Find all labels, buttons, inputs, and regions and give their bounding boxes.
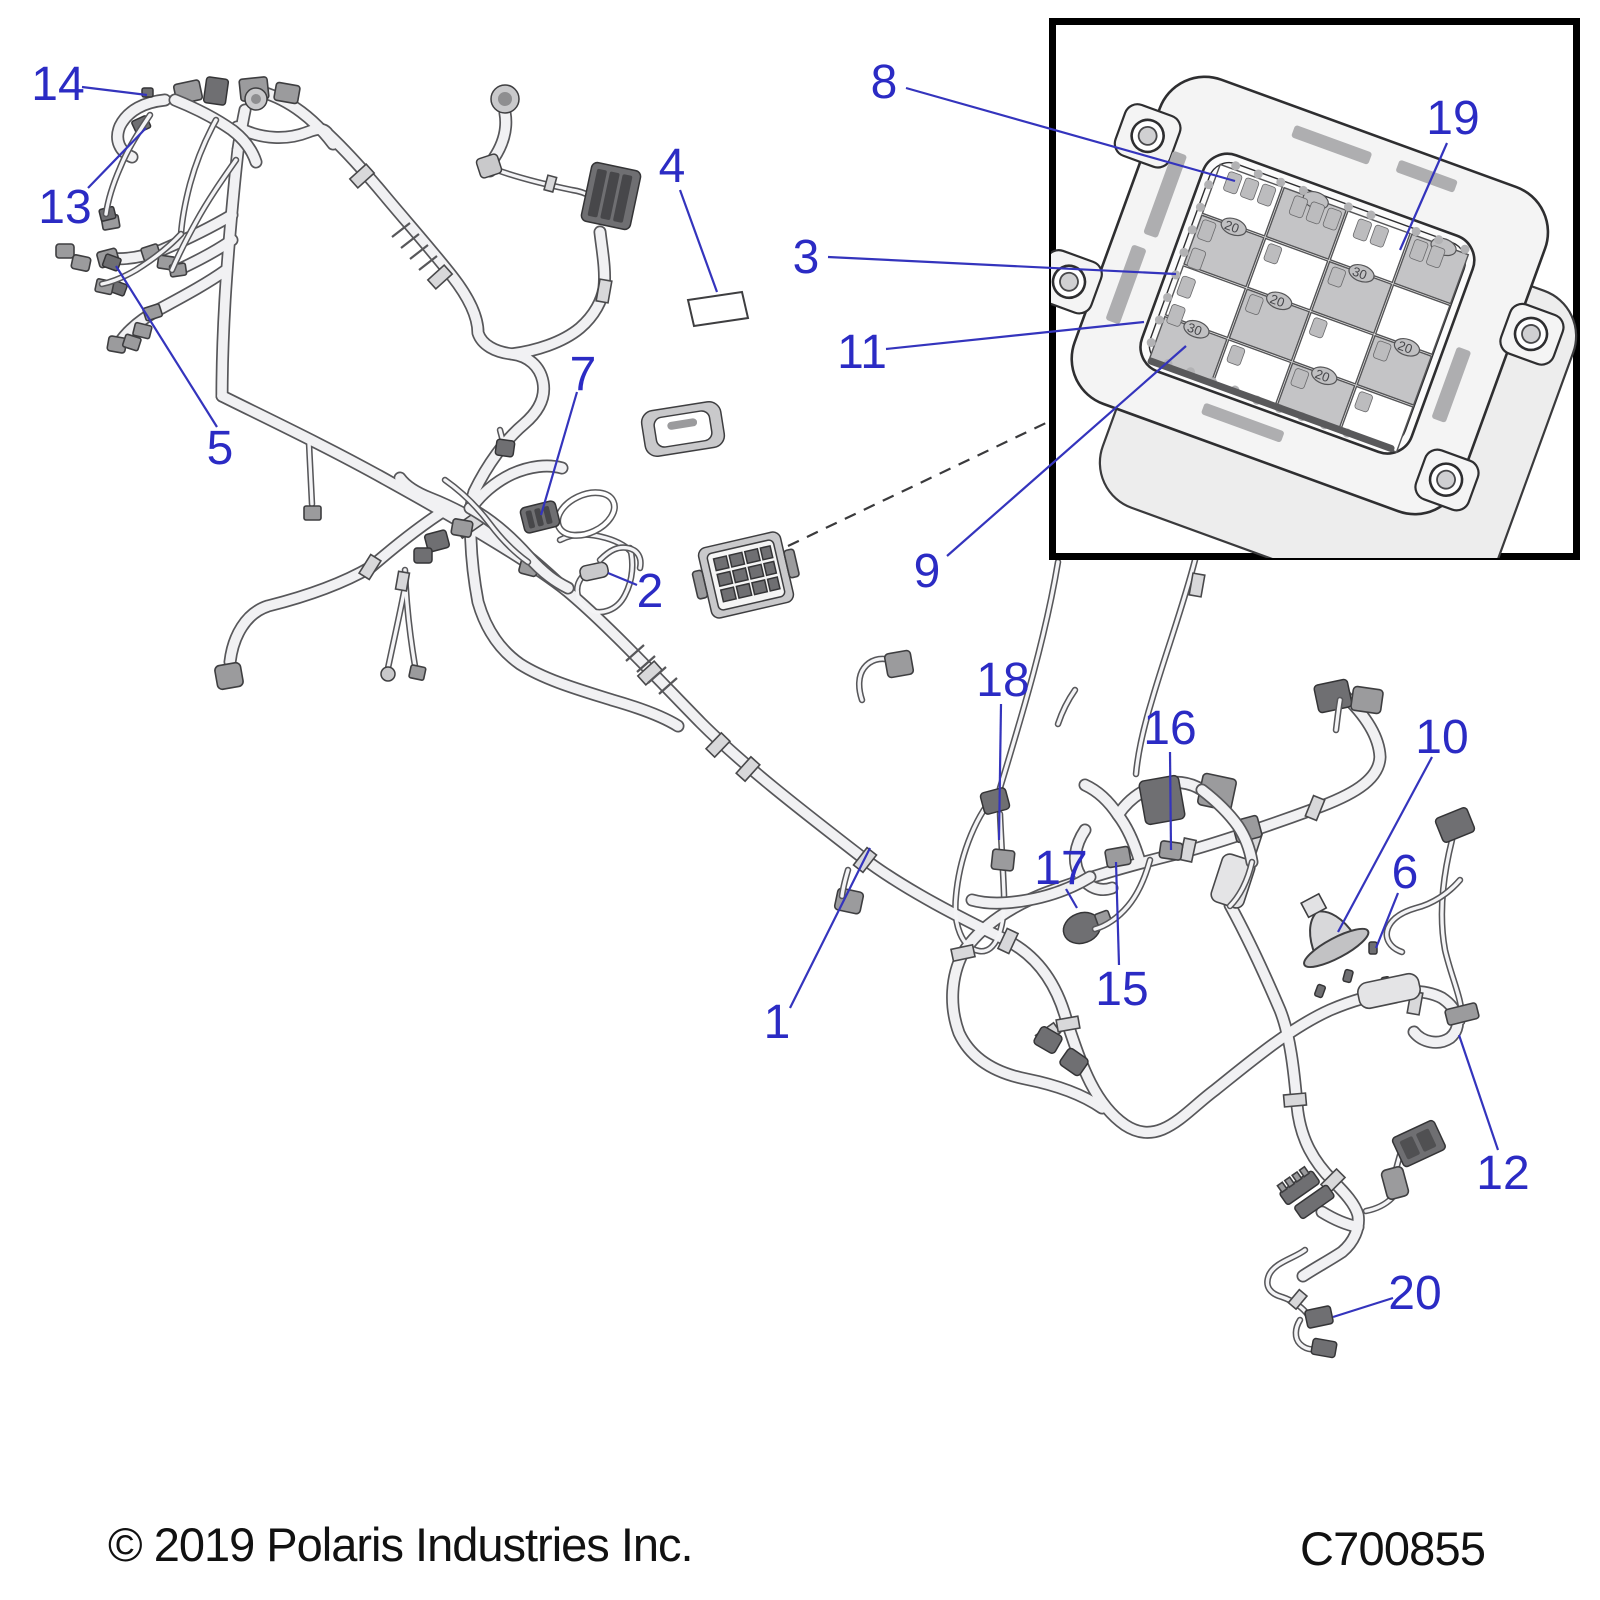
svg-text:15: 15	[1095, 963, 1148, 1016]
svg-text:16: 16	[1143, 702, 1196, 755]
svg-text:5: 5	[207, 422, 234, 475]
svg-text:13: 13	[38, 181, 91, 234]
svg-text:2: 2	[637, 565, 664, 618]
svg-text:14: 14	[31, 58, 84, 111]
svg-text:© 2019 Polaris Industries Inc.: © 2019 Polaris Industries Inc.	[108, 1518, 693, 1571]
svg-text:20: 20	[1388, 1267, 1441, 1320]
svg-text:8: 8	[871, 56, 898, 109]
svg-text:1: 1	[764, 996, 791, 1049]
svg-text:C700855: C700855	[1300, 1522, 1485, 1575]
svg-text:9: 9	[914, 545, 941, 598]
svg-text:12: 12	[1476, 1147, 1529, 1200]
svg-text:17: 17	[1034, 842, 1087, 895]
svg-text:18: 18	[976, 654, 1029, 707]
svg-text:19: 19	[1426, 92, 1479, 145]
svg-text:4: 4	[659, 140, 686, 193]
svg-text:11: 11	[837, 326, 887, 379]
svg-text:10: 10	[1415, 711, 1468, 764]
svg-text:3: 3	[793, 231, 820, 284]
svg-text:6: 6	[1392, 846, 1419, 899]
svg-text:7: 7	[570, 348, 597, 401]
